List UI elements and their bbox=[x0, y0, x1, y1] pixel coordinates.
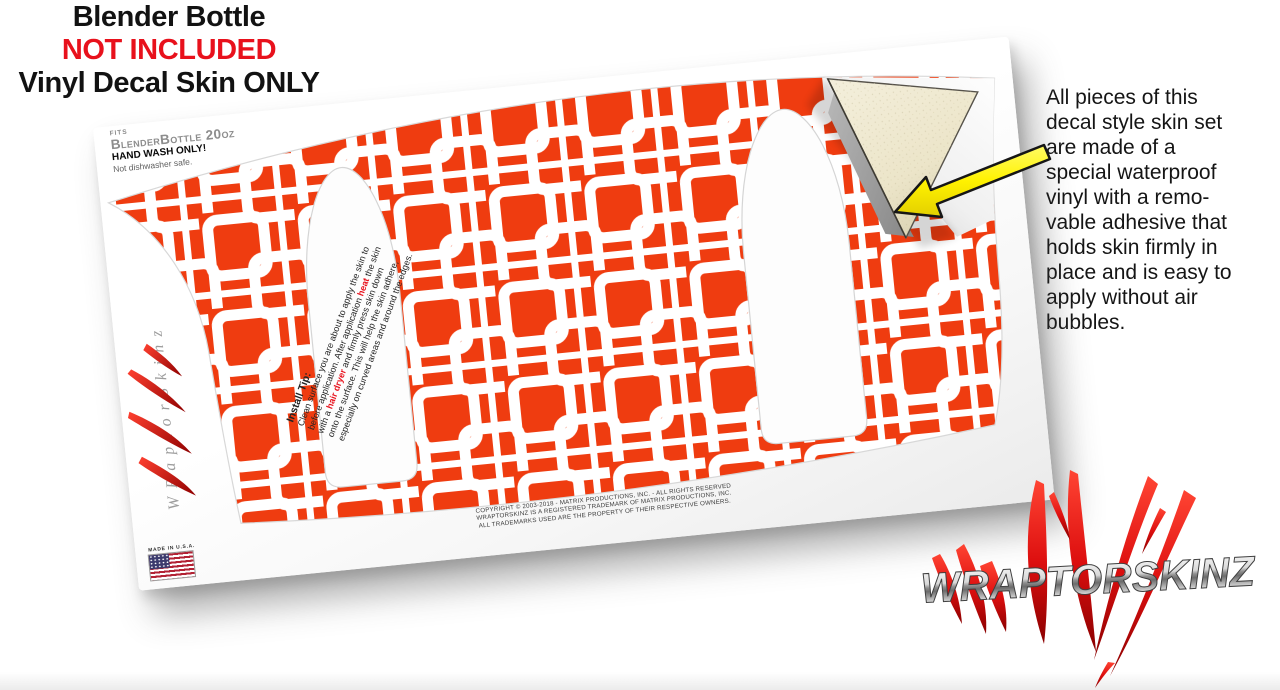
info-line: apply without air bbox=[1046, 285, 1258, 310]
info-line: special waterproof bbox=[1046, 160, 1258, 185]
decal-sheet: FITS BlenderBottle 20oz HAND WASH ONLY! … bbox=[93, 37, 1055, 591]
info-line: vinyl with a remo- bbox=[1046, 185, 1258, 210]
header-skin-only: Vinyl Decal Skin ONLY bbox=[0, 67, 338, 100]
info-line: holds skin firmly in bbox=[1046, 235, 1258, 260]
header-product-line: Blender Bottle bbox=[0, 1, 338, 34]
info-line: bubbles. bbox=[1046, 310, 1258, 335]
info-line: vable adhesive that bbox=[1046, 210, 1258, 235]
header-note: Blender Bottle NOT INCLUDED Vinyl Decal … bbox=[0, 1, 338, 100]
flag-canton bbox=[149, 554, 170, 570]
brand-logo: WRAPTORSKINZ bbox=[912, 466, 1268, 690]
header-not-included: NOT INCLUDED bbox=[0, 34, 338, 67]
us-flag-icon bbox=[148, 550, 196, 581]
product-image: Blender Bottle NOT INCLUDED Vinyl Decal … bbox=[0, 0, 1280, 690]
info-line: place and is easy to bbox=[1046, 260, 1258, 285]
info-panel: All pieces of this decal style skin set … bbox=[1046, 85, 1258, 335]
info-line: decal style skin set bbox=[1046, 110, 1258, 135]
info-line: All pieces of this bbox=[1046, 85, 1258, 110]
info-line: are made of a bbox=[1046, 135, 1258, 160]
